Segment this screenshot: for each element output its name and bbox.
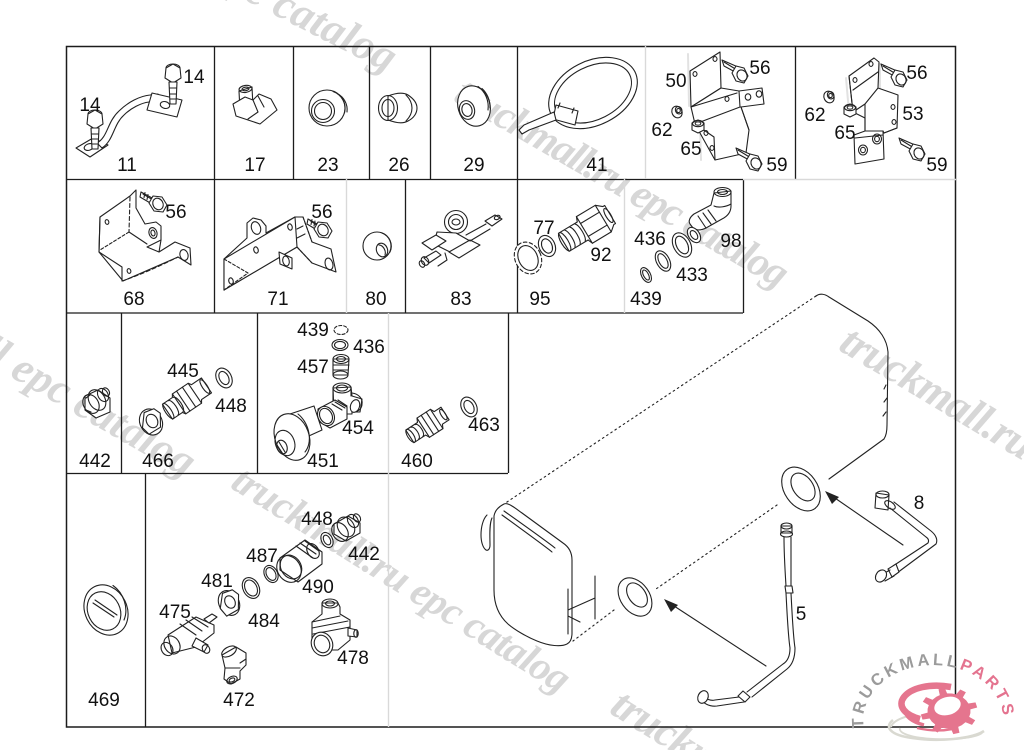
svg-text:478: 478 [337,648,369,669]
svg-text:472: 472 [223,690,255,711]
svg-text:92: 92 [590,245,611,266]
svg-text:23: 23 [317,155,338,176]
svg-text:65: 65 [680,139,701,160]
svg-text:65: 65 [834,123,855,144]
svg-text:59: 59 [926,155,947,176]
svg-text:484: 484 [248,611,280,632]
svg-text:8: 8 [914,493,925,514]
svg-text:77: 77 [533,218,554,239]
svg-text:439: 439 [630,289,662,310]
svg-text:469: 469 [88,690,120,711]
svg-text:56: 56 [165,202,186,223]
svg-text:454: 454 [342,418,374,439]
svg-text:436: 436 [353,337,385,358]
svg-text:448: 448 [301,509,333,530]
svg-text:56: 56 [749,58,770,79]
svg-text:14: 14 [79,95,101,116]
svg-text:14: 14 [183,67,205,88]
svg-text:457: 457 [297,357,329,378]
svg-text:5: 5 [796,604,807,625]
svg-text:442: 442 [348,544,380,565]
svg-text:29: 29 [463,155,484,176]
svg-text:460: 460 [401,451,433,472]
svg-text:71: 71 [267,289,288,310]
svg-text:83: 83 [450,289,471,310]
svg-text:466: 466 [142,451,174,472]
svg-text:442: 442 [79,451,111,472]
svg-text:62: 62 [651,120,672,141]
svg-text:59: 59 [766,155,787,176]
svg-text:490: 490 [302,577,334,598]
svg-text:433: 433 [676,265,708,286]
svg-text:448: 448 [215,396,247,417]
svg-text:50: 50 [665,71,686,92]
svg-text:56: 56 [906,63,927,84]
svg-text:41: 41 [586,155,607,176]
svg-text:95: 95 [529,289,550,310]
svg-text:80: 80 [365,289,386,310]
svg-text:98: 98 [720,231,741,252]
svg-text:463: 463 [468,415,500,436]
svg-text:11: 11 [117,155,137,176]
svg-text:451: 451 [307,451,339,472]
svg-text:439: 439 [297,320,329,341]
svg-text:53: 53 [902,104,923,125]
svg-text:17: 17 [244,155,265,176]
svg-text:475: 475 [159,602,191,623]
svg-text:487: 487 [246,546,278,567]
svg-text:445: 445 [167,361,199,382]
svg-text:56: 56 [311,202,332,223]
svg-text:481: 481 [201,571,233,592]
svg-text:62: 62 [804,105,825,126]
svg-text:68: 68 [123,289,144,310]
svg-text:436: 436 [634,229,666,250]
svg-text:26: 26 [388,155,409,176]
